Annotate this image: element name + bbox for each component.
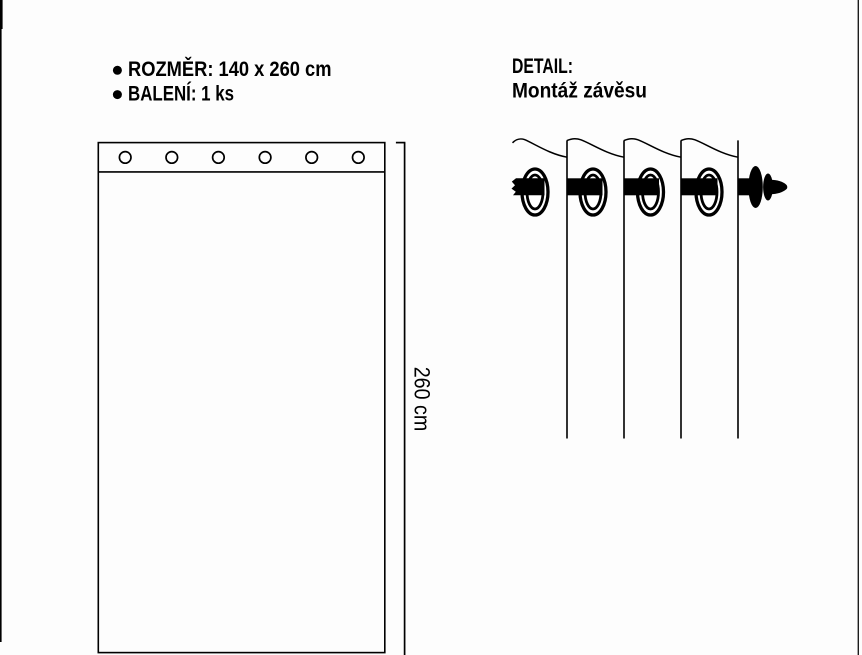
svg-text:Montáž závěsu: Montáž závěsu — [512, 80, 647, 103]
svg-text:BALENÍ: 1 ks: BALENÍ: 1 ks — [128, 82, 234, 105]
svg-text:ROZMĚR: 140 x 260 cm: ROZMĚR: 140 x 260 cm — [128, 57, 332, 81]
svg-text:260 cm: 260 cm — [410, 367, 435, 432]
svg-text:DETAIL:: DETAIL: — [512, 55, 573, 78]
